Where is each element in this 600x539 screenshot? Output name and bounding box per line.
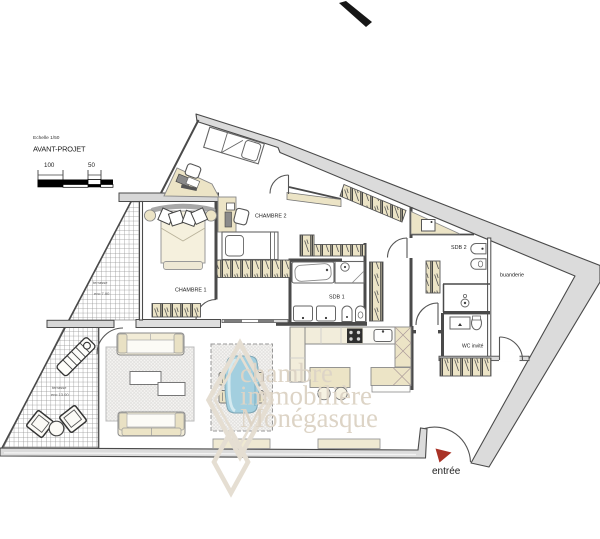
svg-text:AVANT-PROJET: AVANT-PROJET [33,145,86,154]
svg-text:SDB 1: SDB 1 [329,295,345,301]
svg-text:100: 100 [44,162,55,169]
svg-text:enc 7.00: enc 7.00 [94,291,110,296]
svg-text:Echelle 1/50: Echelle 1/50 [33,135,60,141]
svg-text:buanderie: buanderie [500,273,524,279]
svg-text:entrée: entrée [432,466,461,477]
svg-text:CHAMBRE 1: CHAMBRE 1 [175,288,206,294]
svg-text:SDB 2: SDB 2 [451,245,467,251]
svg-text:Monégasque: Monégasque [240,403,378,433]
svg-text:enc 13.00: enc 13.00 [51,392,69,397]
svg-text:terrasse: terrasse [93,280,108,285]
svg-text:terrasse: terrasse [52,385,67,390]
svg-text:50: 50 [88,162,95,169]
svg-text:CHAMBRE 2: CHAMBRE 2 [255,214,286,220]
svg-text:WC invité: WC invité [462,344,484,350]
